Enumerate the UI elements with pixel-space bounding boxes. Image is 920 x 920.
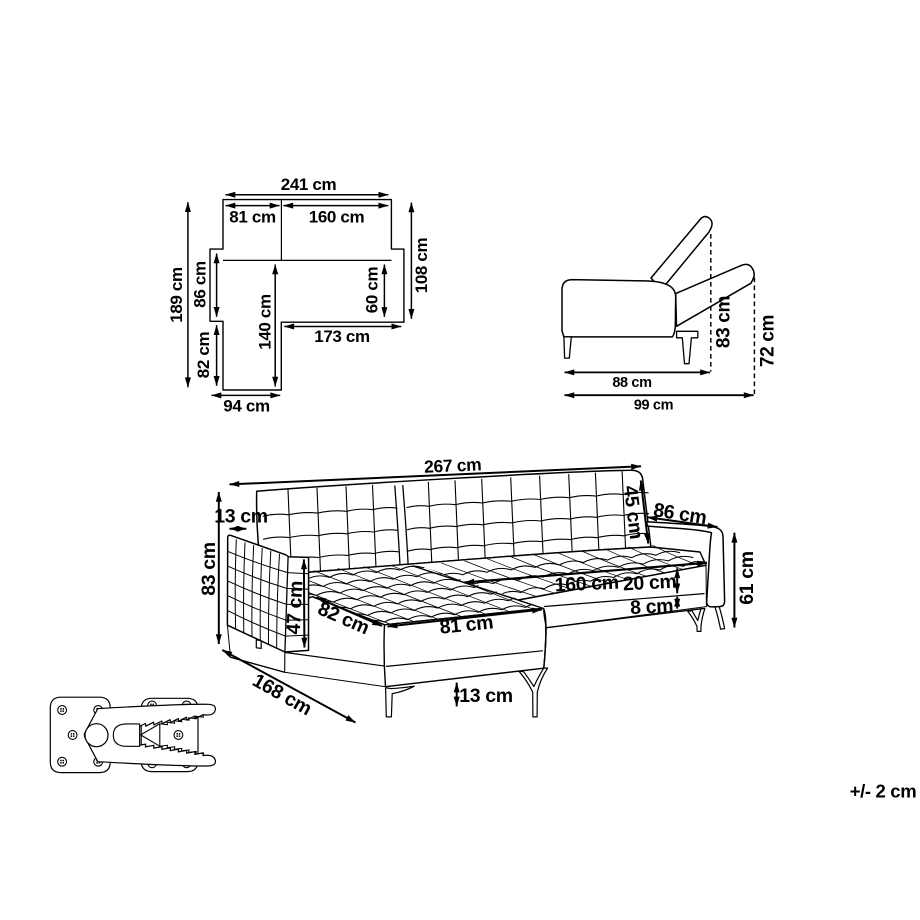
svg-text:241 cm: 241 cm xyxy=(281,175,337,194)
svg-text:8 cm: 8 cm xyxy=(630,595,674,619)
svg-text:160 cm: 160 cm xyxy=(554,572,619,597)
svg-text:60 cm: 60 cm xyxy=(363,267,382,314)
svg-text:108 cm: 108 cm xyxy=(412,237,431,293)
svg-text:20 cm: 20 cm xyxy=(622,571,677,596)
svg-text:99 cm: 99 cm xyxy=(634,398,673,414)
svg-text:61 cm: 61 cm xyxy=(736,551,758,605)
svg-text:+/- 2 cm: +/- 2 cm xyxy=(850,781,917,802)
svg-text:267 cm: 267 cm xyxy=(424,454,482,476)
svg-text:83 cm: 83 cm xyxy=(198,542,220,596)
svg-text:94 cm: 94 cm xyxy=(223,397,270,416)
svg-text:86 cm: 86 cm xyxy=(190,261,209,308)
svg-text:81 cm: 81 cm xyxy=(229,208,276,227)
svg-text:13 cm: 13 cm xyxy=(214,506,268,528)
svg-text:13 cm: 13 cm xyxy=(459,685,513,707)
svg-text:160 cm: 160 cm xyxy=(309,208,365,227)
svg-text:83 cm: 83 cm xyxy=(714,296,735,348)
svg-text:88 cm: 88 cm xyxy=(612,375,651,391)
svg-text:189 cm: 189 cm xyxy=(167,267,186,323)
svg-text:140 cm: 140 cm xyxy=(255,294,274,350)
svg-text:72 cm: 72 cm xyxy=(758,315,779,367)
svg-text:173 cm: 173 cm xyxy=(314,327,370,346)
svg-text:47 cm: 47 cm xyxy=(283,580,308,635)
svg-text:82 cm: 82 cm xyxy=(194,332,213,379)
